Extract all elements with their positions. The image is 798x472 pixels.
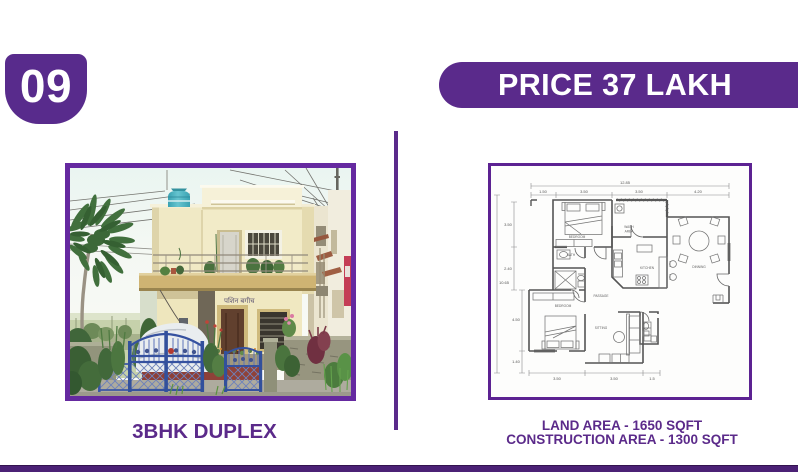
svg-text:पशिन बगीच: पशिन बगीच [224, 296, 255, 305]
svg-text:1.5: 1.5 [649, 376, 655, 381]
svg-text:BEDROOM: BEDROOM [569, 235, 586, 239]
svg-text:WASH: WASH [624, 225, 634, 229]
svg-text:3.50: 3.50 [610, 376, 619, 381]
svg-text:2.40: 2.40 [504, 266, 513, 271]
svg-text:3.50: 3.50 [504, 222, 513, 227]
svg-text:3.50: 3.50 [635, 189, 644, 194]
svg-text:12.85: 12.85 [620, 180, 631, 185]
svg-text:3.50: 3.50 [580, 189, 589, 194]
svg-text:AREA: AREA [625, 230, 635, 234]
svg-text:4.50: 4.50 [512, 317, 521, 322]
svg-text:1.50: 1.50 [539, 189, 548, 194]
svg-text:BATH: BATH [567, 253, 576, 257]
svg-text:PASSAGE: PASSAGE [594, 294, 609, 298]
svg-text:SITTING: SITTING [595, 326, 608, 330]
svg-text:KITCHEN: KITCHEN [640, 266, 655, 270]
svg-text:DINNING: DINNING [692, 265, 706, 269]
svg-text:BEDROOM: BEDROOM [555, 304, 572, 308]
svg-text:10.65: 10.65 [499, 280, 510, 285]
svg-text:4.20: 4.20 [694, 189, 703, 194]
svg-text:3.50: 3.50 [553, 376, 562, 381]
svg-text:1.40: 1.40 [512, 359, 521, 364]
